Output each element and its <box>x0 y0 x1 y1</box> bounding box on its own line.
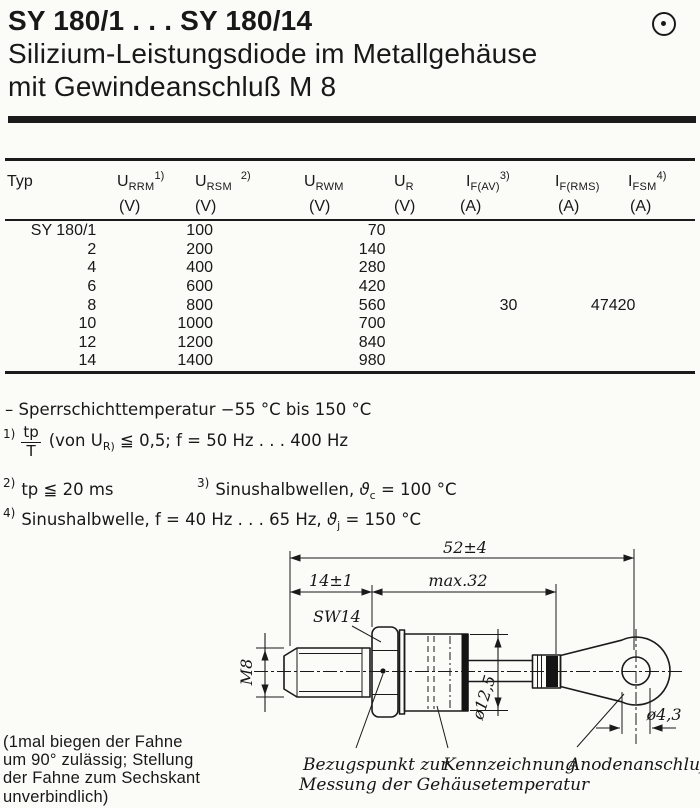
table-row: 141400980 <box>5 352 695 371</box>
anode-label: Anodenanschluß <box>566 755 700 775</box>
subtitle-line-2: mit Gewindeanschluß M 8 <box>8 70 537 103</box>
subtitle-line-1: Silizium-Leistungsdiode im Metallgehäuse <box>8 37 537 70</box>
column-header-typ: Typ <box>7 170 33 198</box>
table-header: Typ URRM1)(V) URSM2)(V) URWM(V) UR(V) IF… <box>5 158 695 220</box>
thread-label: M8 <box>240 659 256 687</box>
footnote-1-marker: 1) <box>3 427 15 441</box>
footnote-2: 2)tp ≦ 20 ms <box>3 476 114 499</box>
column-header-ifav: IF(AV)3)(A) <box>466 170 510 216</box>
flag-bending-note-line2: um 90° zulässig; Stellung <box>3 751 200 769</box>
table-row: 4400280 <box>5 259 695 278</box>
footnote-1: 1)tpT(von UR) ≦ 0,5; f = 50 Hz . . . 400… <box>3 425 348 460</box>
ref-point-label-line2: Messung der Gehäusetemperatur <box>298 775 590 795</box>
leader-line <box>577 694 624 747</box>
datasheet-page: SY 180/1 . . . SY 180/14 Silizium-Leistu… <box>0 0 700 808</box>
column-header-urrm: URRM1)(V) <box>117 170 164 216</box>
footnote-3-marker: 3) <box>197 476 209 490</box>
case-body <box>405 634 469 711</box>
case-end-cap <box>462 634 469 711</box>
hole-diameter-label: ø4,3 <box>645 705 681 724</box>
footnote-2-marker: 2) <box>3 476 15 490</box>
flag-bending-note-line4: unverbindlich) <box>3 788 200 806</box>
dot-circle-icon <box>652 12 676 36</box>
dim-total-label: 52±4 <box>443 540 487 557</box>
table-row: 88005603047420 <box>5 296 695 315</box>
footnote-3: 3)Sinushalbwellen, ϑc = 100 °C <box>197 476 457 502</box>
table-bottom-rule <box>5 371 695 374</box>
page-title: SY 180/1 . . . SY 180/14 <box>8 5 312 37</box>
footnote-4-marker: 4) <box>3 506 15 520</box>
ref-point-label-line1: Bezugspunkt zur <box>302 755 449 775</box>
leader-line <box>352 626 381 642</box>
table-row: 101000700 <box>5 315 695 334</box>
dim-body-label: max.32 <box>428 571 487 590</box>
crimp-band <box>546 656 558 687</box>
tp-over-t-fraction: tpT <box>21 425 40 460</box>
column-header-urwm: URWM(V) <box>304 170 344 216</box>
table-row: 2200140 <box>5 241 695 260</box>
ratings-table: SY 180/110070 2200140 4400280 6600420 88… <box>5 222 695 371</box>
column-header-ur: UR(V) <box>394 170 415 216</box>
flag-bending-note: (1mal biegen der Fahne um 90° zulässig; … <box>3 733 200 806</box>
leader-line <box>437 706 448 748</box>
outline-drawing: 52±4 14±1 max.32 SW14 M8 <box>240 540 700 808</box>
reference-point-dot <box>380 668 385 673</box>
flag-bending-note-line1: (1mal biegen der Fahne <box>3 733 200 751</box>
table-row: SY 180/110070 <box>5 222 695 241</box>
title-divider-rule <box>8 116 696 123</box>
column-header-ifrms: IF(RMS)(A) <box>555 170 600 216</box>
table-row: 6600420 <box>5 278 695 297</box>
column-header-ifsm: IFSM4)(A) <box>628 170 666 216</box>
marking-label: Kennzeichnung <box>442 755 576 775</box>
dim-thread-label: 14±1 <box>309 571 353 590</box>
body-diameter-label: ø12,5 <box>468 673 500 723</box>
column-header-ursm: URSM2)(V) <box>195 170 251 216</box>
junction-temp-note: – Sperrschichttemperatur −55 °C bis 150 … <box>5 400 371 419</box>
wrench-size-label: SW14 <box>313 607 361 626</box>
footnote-4: 4)Sinushalbwelle, f = 40 Hz . . . 65 Hz,… <box>3 506 421 532</box>
page-subtitle: Silizium-Leistungsdiode im Metallgehäuse… <box>8 37 537 103</box>
table-row: 121200840 <box>5 334 695 353</box>
dot-circle-icon-dot <box>661 21 666 26</box>
flag-bending-note-line3: der Fahne zum Sechskant <box>3 769 200 787</box>
